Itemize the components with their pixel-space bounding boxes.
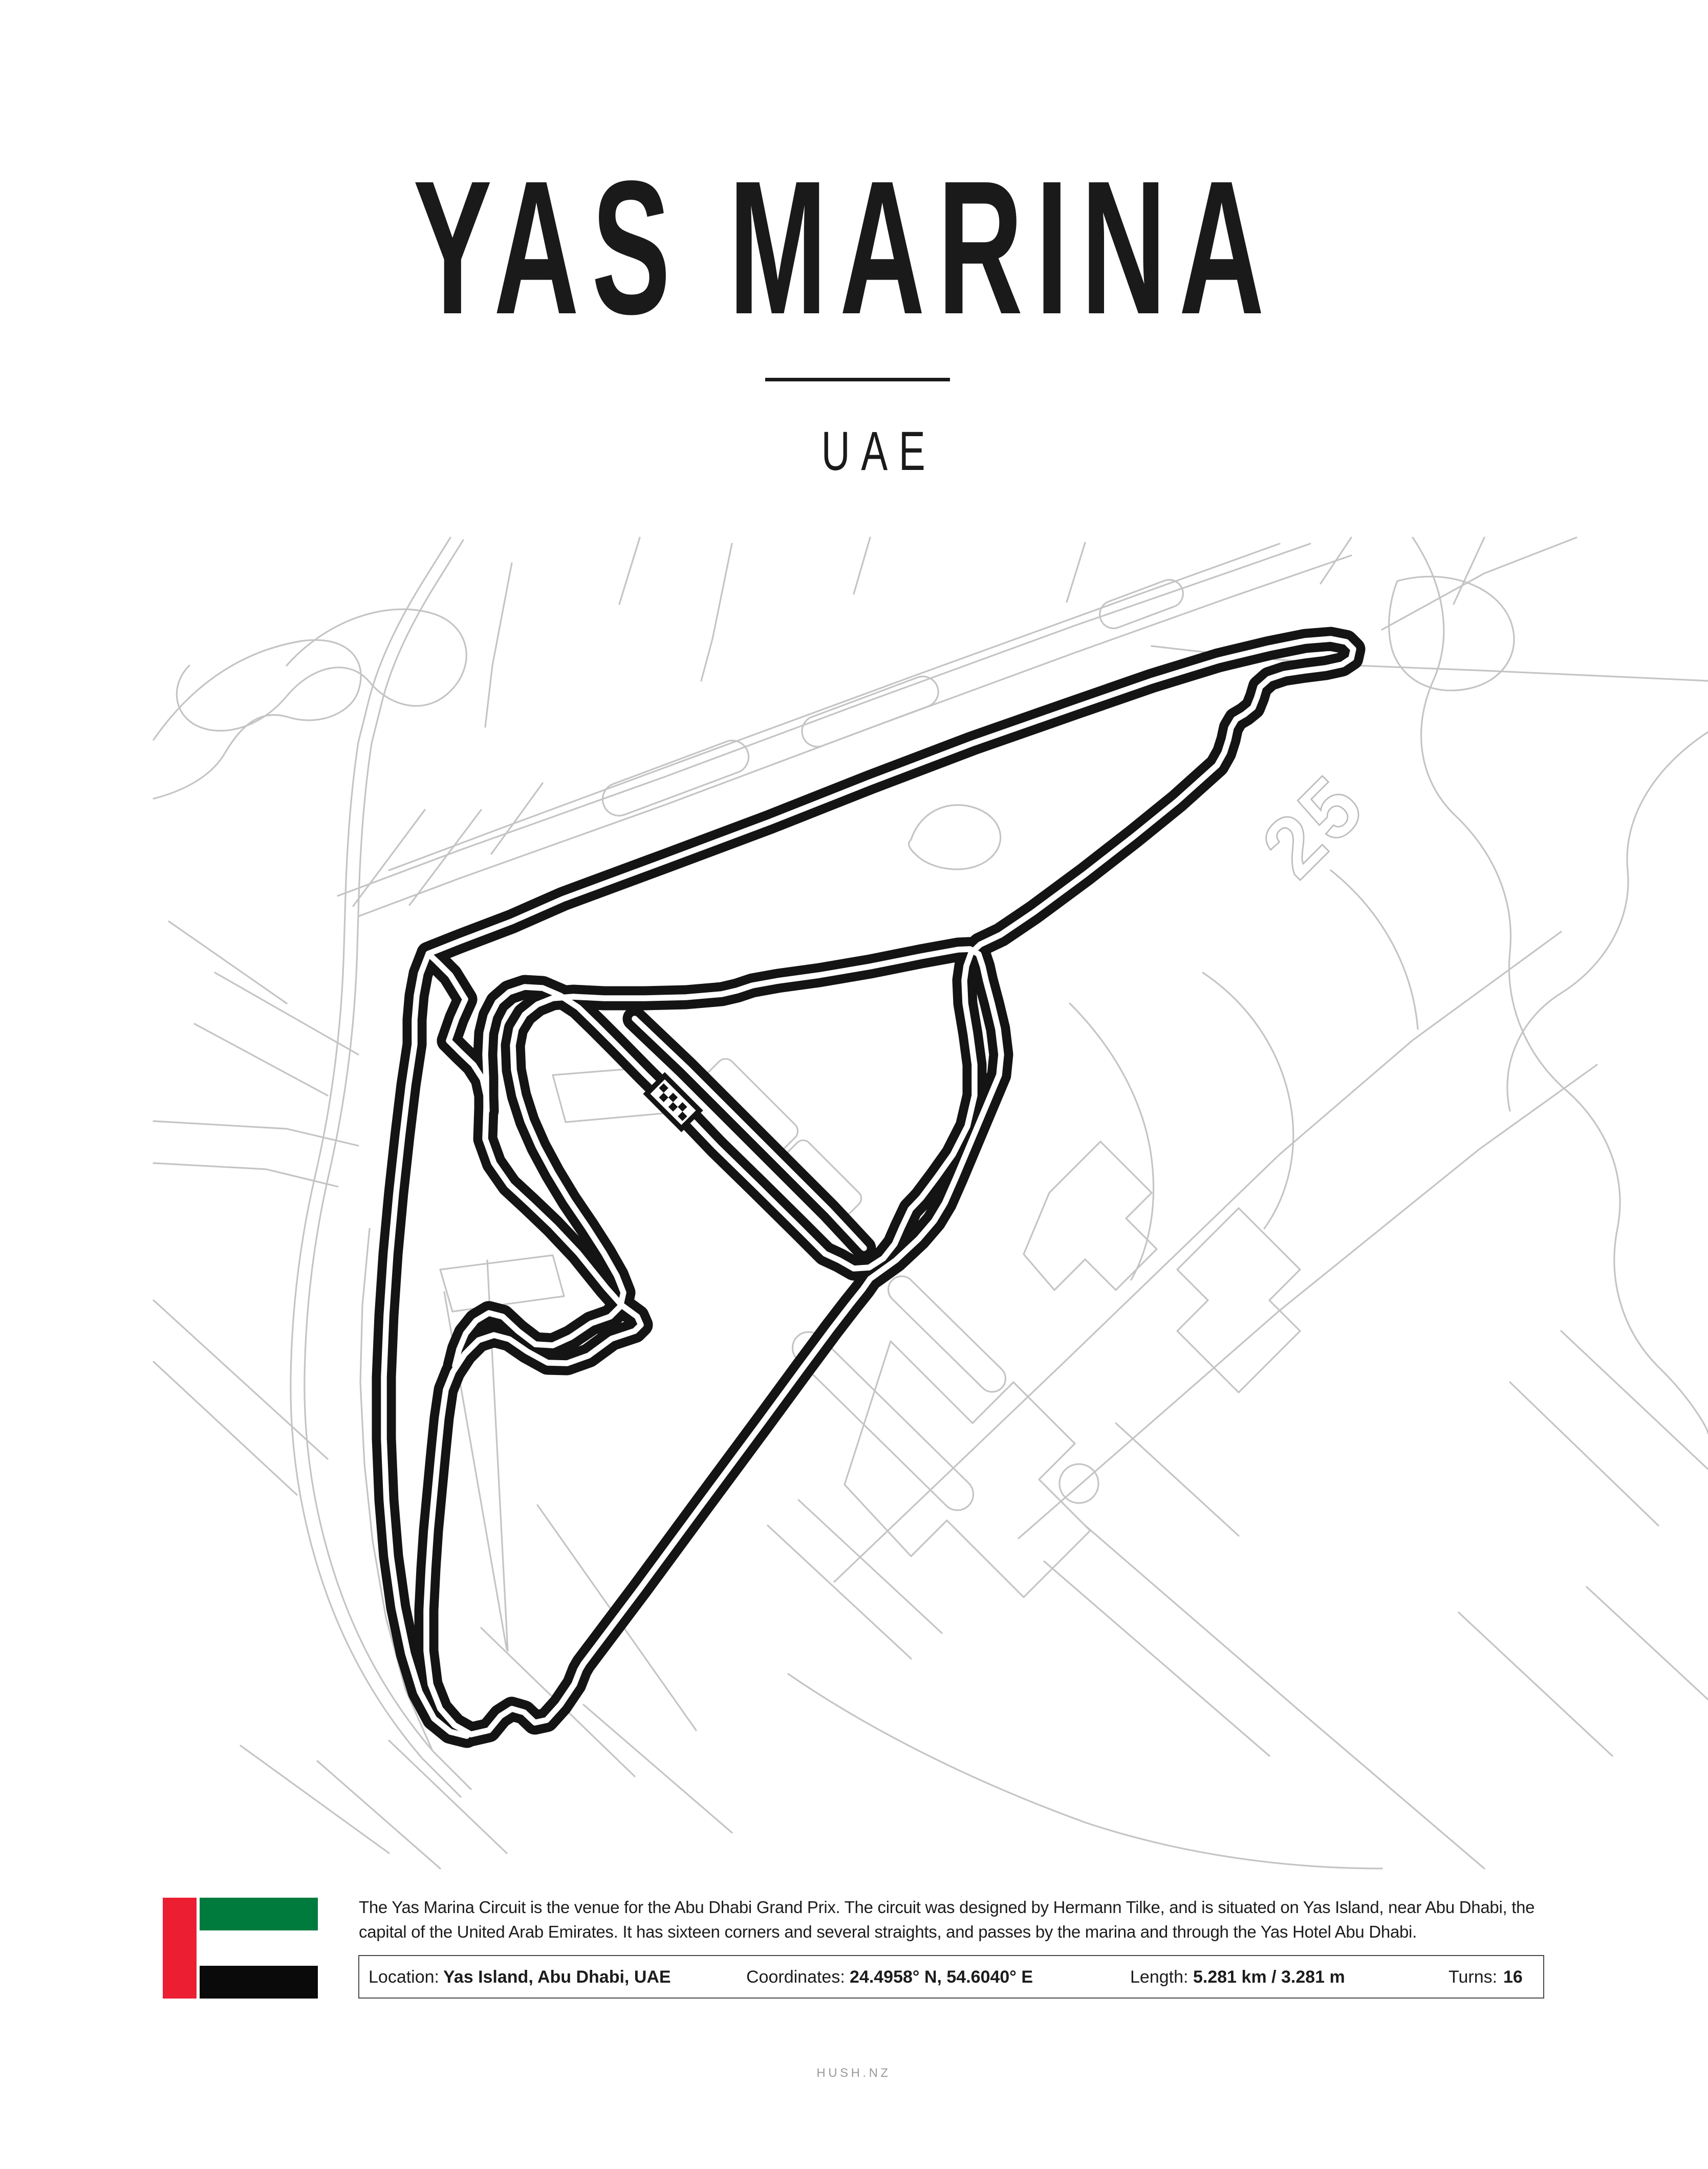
svg-text:The Yas Marina Circuit is the: The Yas Marina Circuit is the venue for … bbox=[359, 1898, 1534, 1917]
svg-text:HUSH.NZ: HUSH.NZ bbox=[816, 2066, 891, 2080]
svg-text:YAS MARINA: YAS MARINA bbox=[413, 141, 1277, 354]
svg-text:Yas Island, Abu Dhabi, UAE: Yas Island, Abu Dhabi, UAE bbox=[443, 1967, 671, 1987]
svg-text:16: 16 bbox=[1503, 1967, 1523, 1987]
svg-text:24.4958° N, 54.6040° E: 24.4958° N, 54.6040° E bbox=[850, 1967, 1033, 1987]
svg-text:Location:: Location: bbox=[369, 1967, 439, 1987]
svg-text:UAE: UAE bbox=[821, 420, 937, 482]
svg-text:Turns:: Turns: bbox=[1448, 1967, 1497, 1987]
svg-text:5.281 km / 3.281 m: 5.281 km / 3.281 m bbox=[1193, 1967, 1345, 1987]
svg-text:Coordinates:: Coordinates: bbox=[746, 1967, 845, 1987]
svg-text:Length:: Length: bbox=[1130, 1967, 1188, 1987]
svg-text:capital of the United Arab Emi: capital of the United Arab Emirates. It … bbox=[359, 1922, 1417, 1941]
